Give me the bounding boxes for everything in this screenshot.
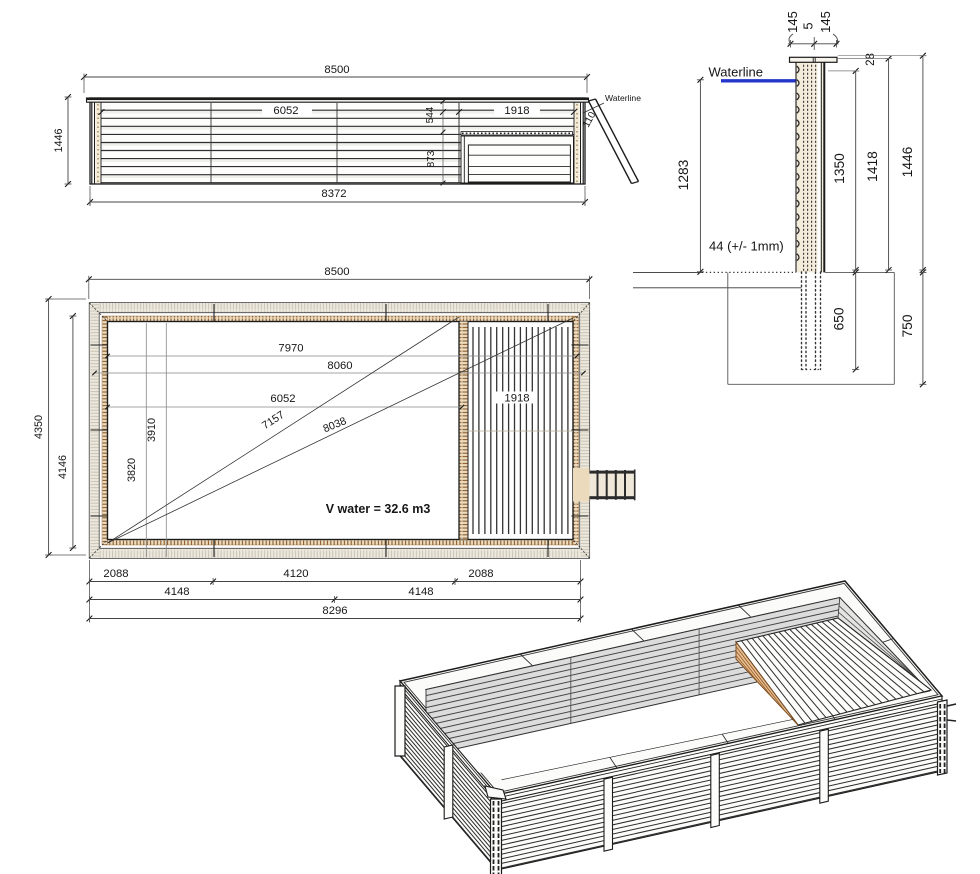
svg-text:8500: 8500 (324, 266, 349, 278)
svg-text:5: 5 (801, 22, 816, 29)
svg-text:7970: 7970 (278, 343, 303, 355)
svg-text:8060: 8060 (327, 360, 352, 372)
svg-text:1918: 1918 (504, 393, 529, 405)
svg-text:650: 650 (832, 307, 847, 330)
svg-text:Waterline: Waterline (605, 93, 641, 103)
svg-text:3910: 3910 (146, 418, 158, 442)
svg-text:2088: 2088 (468, 568, 493, 580)
svg-text:750: 750 (900, 314, 915, 337)
svg-text:3820: 3820 (126, 458, 138, 482)
svg-text:Waterline: Waterline (709, 64, 763, 79)
svg-text:1283: 1283 (676, 159, 691, 190)
svg-text:2088: 2088 (103, 568, 128, 580)
svg-text:8372: 8372 (321, 188, 346, 200)
svg-text:28: 28 (865, 53, 877, 66)
svg-text:1350: 1350 (832, 153, 847, 184)
svg-text:V water = 32.6 m3: V water = 32.6 m3 (326, 502, 431, 516)
svg-text:6052: 6052 (273, 105, 298, 117)
svg-text:145: 145 (785, 11, 800, 33)
svg-text:44 (+/- 1mm): 44 (+/- 1mm) (709, 239, 784, 254)
svg-text:4148: 4148 (408, 586, 433, 598)
svg-text:1446: 1446 (53, 128, 65, 152)
svg-text:1418: 1418 (865, 151, 880, 182)
svg-text:8500: 8500 (324, 64, 349, 76)
svg-text:544: 544 (425, 106, 436, 123)
svg-text:1446: 1446 (900, 146, 915, 177)
svg-text:4350: 4350 (33, 415, 45, 439)
svg-text:8296: 8296 (322, 605, 347, 617)
svg-text:4148: 4148 (164, 586, 189, 598)
svg-text:873: 873 (426, 150, 437, 167)
svg-text:145: 145 (818, 11, 833, 33)
svg-text:4120: 4120 (283, 568, 308, 580)
svg-text:4146: 4146 (57, 455, 69, 479)
svg-text:6052: 6052 (270, 393, 295, 405)
svg-text:1918: 1918 (504, 105, 529, 117)
